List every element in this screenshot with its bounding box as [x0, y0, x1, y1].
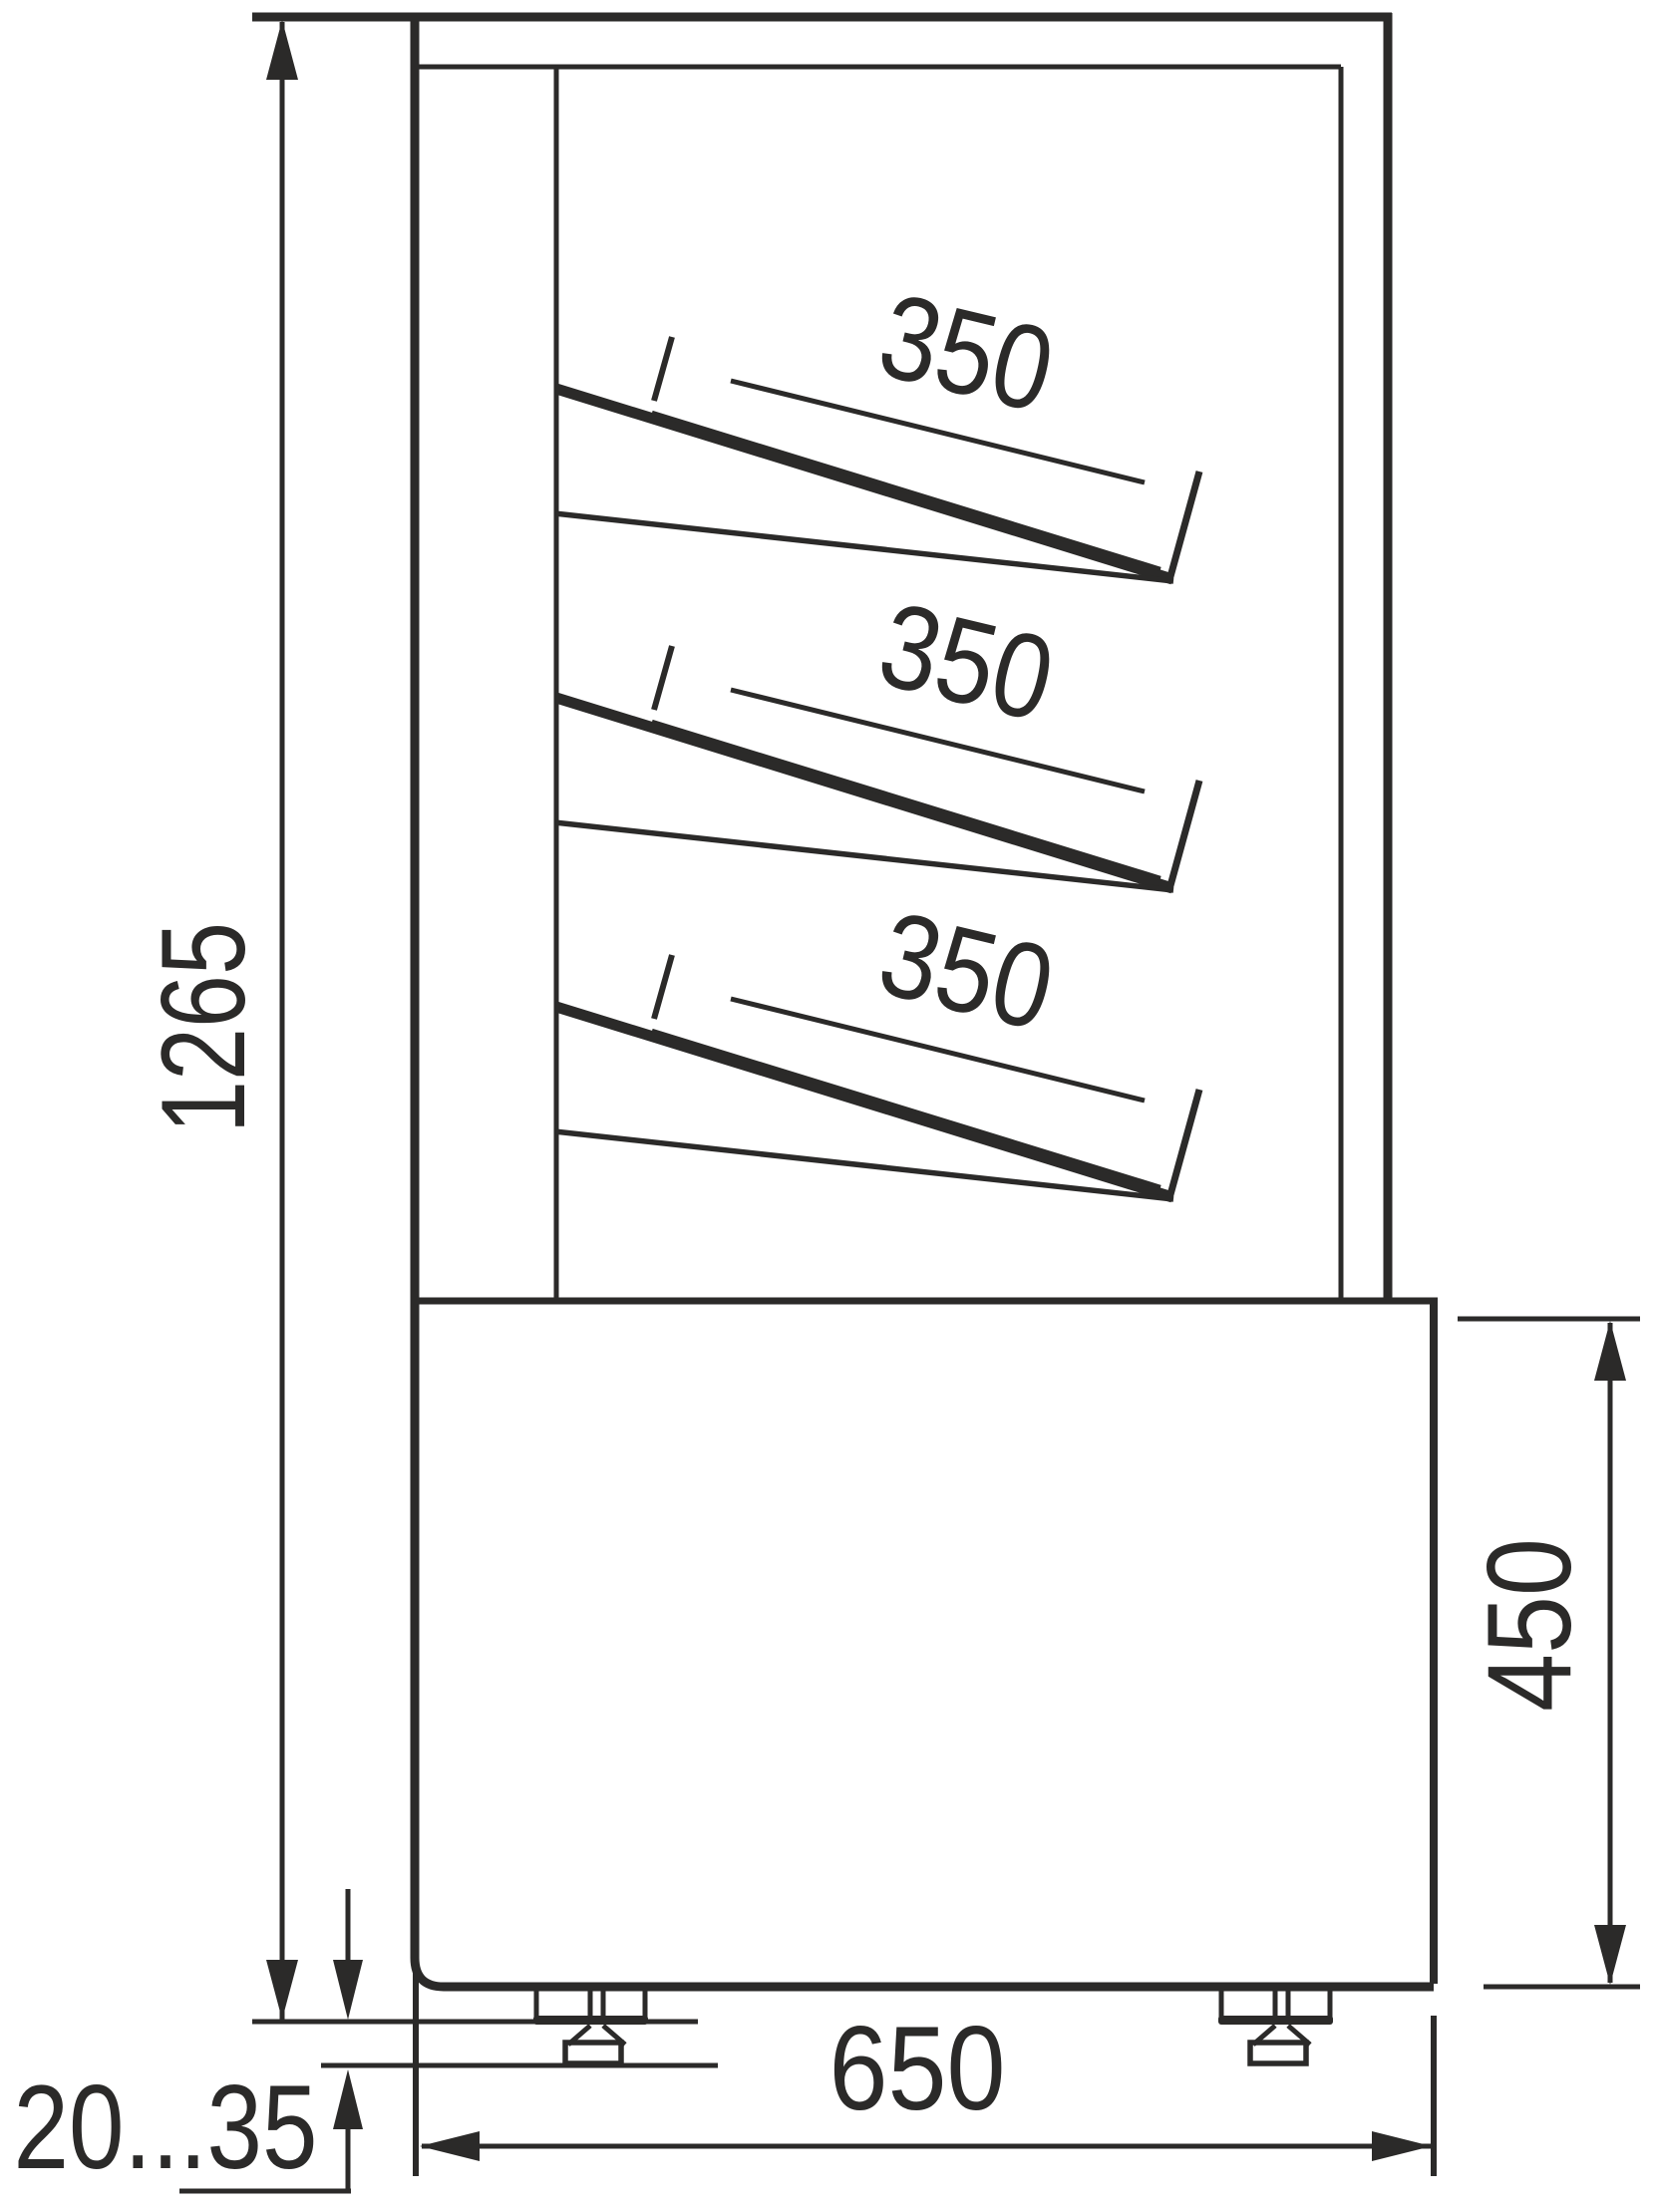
- shelf-board-line: [556, 389, 1172, 579]
- arrow-up-icon: [266, 20, 298, 80]
- dimension-base-height: 450: [1458, 1319, 1640, 1987]
- foot-range-label: 20...35: [14, 2060, 318, 2194]
- drawing-page: 350 350 350: [0, 0, 1654, 2212]
- arrow-down-icon: [333, 1960, 363, 2020]
- shelf-depth-label: 350: [867, 886, 1066, 1056]
- foot-plate-slab: [1218, 2016, 1333, 2025]
- dimension-total-height: 1265: [137, 20, 298, 2020]
- base-height-label: 450: [1463, 1538, 1596, 1712]
- base-depth-label: 650: [829, 2002, 1006, 2135]
- left-foot: [533, 1987, 648, 2063]
- arrow-up-icon: [1594, 1321, 1626, 1381]
- shelf-top-thin-line: [652, 1031, 1160, 1187]
- right-foot: [1218, 1987, 1333, 2063]
- arrow-down-icon: [266, 1960, 298, 2020]
- shelf-dim-right-tick: [1169, 781, 1199, 889]
- shelf-top-thin-line: [652, 722, 1160, 878]
- shelf-dim-left-tick: [654, 646, 672, 710]
- display-case-side-view-drawing: 350 350 350: [0, 0, 1654, 2212]
- arrow-up-icon: [333, 2069, 363, 2129]
- cabinet-outline: [252, 13, 1438, 1987]
- shelf-3: 350: [554, 886, 1199, 1199]
- arrow-left-icon: [420, 2131, 480, 2161]
- arrow-right-icon: [1372, 2131, 1432, 2161]
- shelf-board-line: [556, 698, 1172, 888]
- shelf-dim-left-tick: [654, 955, 672, 1019]
- shelf-depth-label: 350: [867, 577, 1066, 747]
- total-height-label: 1265: [137, 922, 270, 1133]
- foot-base-block: [1250, 2043, 1306, 2063]
- shelf-dim-right-tick: [1169, 1090, 1199, 1198]
- foot-base-block: [565, 2043, 621, 2063]
- shelf-dim-left-tick: [654, 337, 672, 401]
- shelf-board-line: [556, 1007, 1172, 1197]
- arrow-down-icon: [1594, 1925, 1626, 1985]
- shelf-dim-right-tick: [1169, 472, 1199, 580]
- shelf-depth-label: 350: [867, 268, 1066, 438]
- shelf-1: 350: [554, 268, 1199, 581]
- shelf-top-thin-line: [652, 413, 1160, 569]
- shelf-2: 350: [554, 577, 1199, 890]
